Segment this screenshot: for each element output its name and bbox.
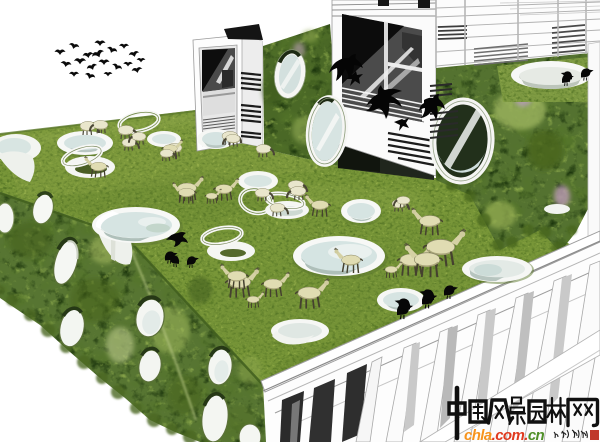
svg-text:chla.com.cn: chla.com.cn bbox=[464, 427, 545, 442]
